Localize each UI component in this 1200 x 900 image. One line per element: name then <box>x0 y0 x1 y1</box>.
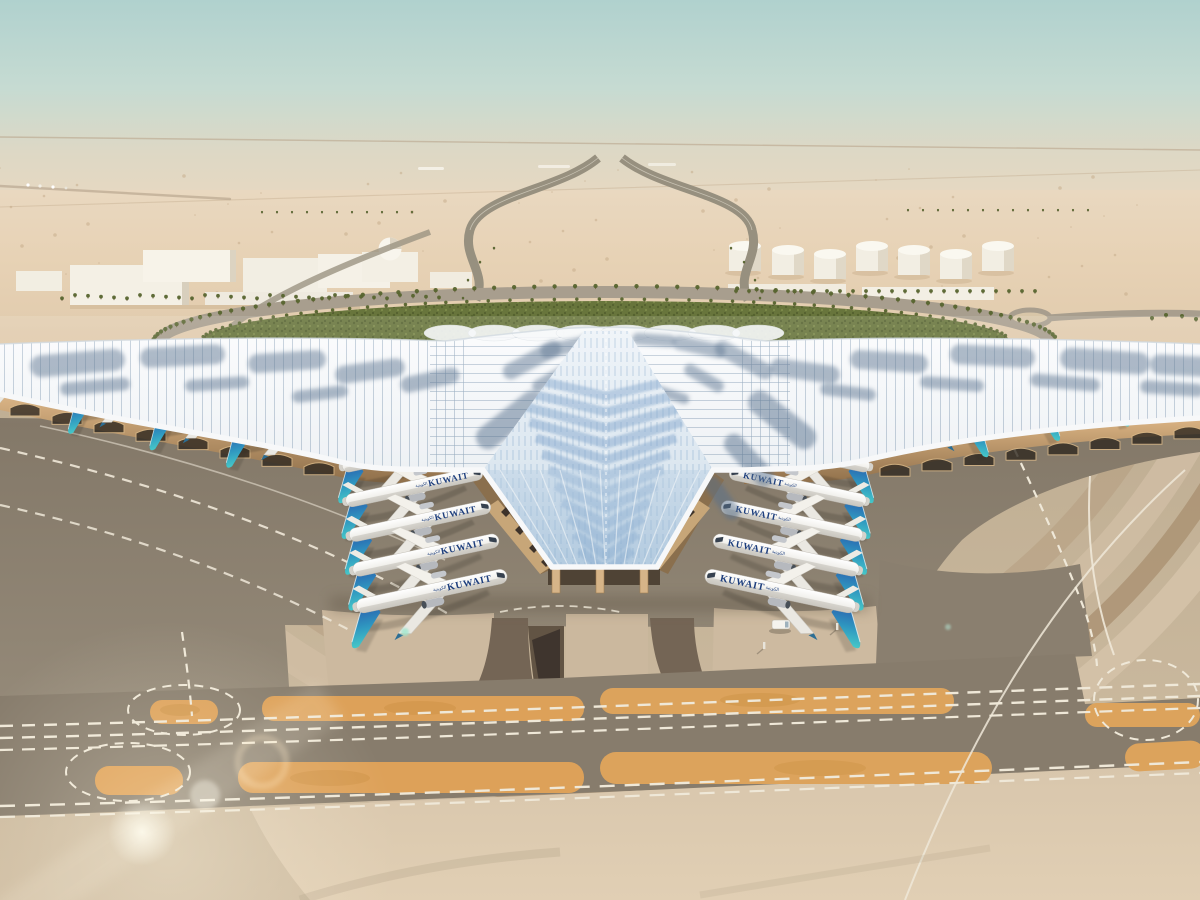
palm-crown <box>306 211 308 213</box>
palm-crown <box>967 209 969 211</box>
palm-crown <box>903 289 907 293</box>
sky <box>0 0 1200 210</box>
tank-top <box>856 241 888 251</box>
palm-crown <box>675 285 679 289</box>
scrub <box>443 199 447 203</box>
palm-crown <box>813 303 817 307</box>
palm-crown <box>321 211 323 213</box>
shoulder-mottle <box>774 760 866 776</box>
palm-crown <box>444 301 448 305</box>
scrub <box>344 232 348 236</box>
palm-crown <box>294 295 298 299</box>
tank-top <box>940 249 972 259</box>
palm-crown <box>890 289 894 293</box>
taxiway-lobe-right <box>876 560 1092 664</box>
palm-crown <box>812 289 816 293</box>
palm-crown <box>877 289 881 293</box>
palm-crown <box>276 211 278 213</box>
palm-crown <box>242 296 246 300</box>
palm-crown <box>486 299 490 303</box>
palm-crown <box>793 302 797 306</box>
scrub <box>691 171 694 174</box>
scrub <box>76 184 79 187</box>
palm-crown <box>754 279 757 282</box>
palm-crown <box>299 312 303 316</box>
palm-crown <box>346 294 350 298</box>
palm-crown <box>915 312 919 316</box>
palm-crown <box>900 311 904 315</box>
palm-crown <box>333 293 337 297</box>
scrub <box>518 202 520 204</box>
palm-crown <box>424 295 428 299</box>
scrub <box>746 238 748 240</box>
palm-crown <box>351 211 353 213</box>
palm-crown <box>331 308 335 312</box>
small-building <box>16 271 62 291</box>
palm-crown <box>190 296 194 300</box>
tank-top <box>982 241 1014 251</box>
palm-crown <box>695 285 699 289</box>
scrub <box>10 206 13 209</box>
scrub <box>572 268 576 272</box>
palm-crown <box>241 306 245 310</box>
palm-crown <box>687 298 691 302</box>
palm-crown <box>907 209 909 211</box>
gate-arch <box>1132 432 1162 444</box>
palm-crown <box>1042 209 1044 211</box>
gate-arch <box>880 464 910 476</box>
palm-crown <box>378 291 382 295</box>
scrub <box>529 241 532 244</box>
palm-crown <box>267 302 271 306</box>
scrub <box>1091 175 1095 179</box>
palm-crown <box>424 302 428 306</box>
palm-crown <box>472 286 476 290</box>
scrub <box>584 180 586 182</box>
small-building <box>430 272 472 288</box>
storage-tank <box>936 249 972 284</box>
palm-crown <box>553 298 557 302</box>
palm-crown <box>281 301 285 305</box>
scrub <box>86 222 90 226</box>
palm-crown <box>437 296 441 300</box>
palm-crown <box>398 293 402 297</box>
tank-top <box>772 245 804 255</box>
palm-crown <box>493 247 496 250</box>
palm-crown <box>982 209 984 211</box>
scrub <box>1103 215 1105 217</box>
palm-crown <box>937 209 939 211</box>
tank-top <box>814 249 846 259</box>
palm-crown <box>922 209 924 211</box>
gate-arch <box>1174 427 1200 439</box>
palm-crown <box>255 296 259 300</box>
palm-crown <box>384 304 388 308</box>
warehouse <box>243 258 327 292</box>
scrub <box>43 195 46 198</box>
palm-crown <box>492 286 496 290</box>
scrub <box>1048 276 1051 279</box>
palm-crown <box>86 294 90 298</box>
palm-crown <box>966 306 970 310</box>
palm-crown <box>665 298 669 302</box>
palm-crown <box>348 307 352 311</box>
palm-crown <box>829 291 833 295</box>
palm-crown <box>366 211 368 213</box>
palm-crown <box>731 299 735 303</box>
palm-crown <box>655 284 659 288</box>
scrub <box>98 262 100 264</box>
palm-crown <box>989 311 993 315</box>
scrub <box>875 179 877 181</box>
scrub <box>908 168 910 170</box>
scrub <box>962 234 966 238</box>
scrub <box>400 172 403 175</box>
scrub <box>562 230 565 233</box>
scrub <box>65 273 67 275</box>
palm-crown <box>709 299 713 303</box>
distant-car <box>26 183 29 186</box>
palm-crown <box>254 304 258 308</box>
palm-crown <box>940 303 944 307</box>
palm-crown <box>884 309 888 313</box>
scrub <box>194 214 196 216</box>
palm-crown <box>532 285 536 289</box>
palm-crown <box>880 296 884 300</box>
palm-crown <box>994 289 998 293</box>
palm-crown <box>60 296 64 300</box>
palm-crown <box>1033 289 1037 293</box>
palm-crown <box>643 297 647 301</box>
facade-column <box>552 569 560 593</box>
palm-crown <box>955 289 959 293</box>
gate-arch <box>1006 448 1036 460</box>
scrub <box>53 233 57 237</box>
gate-arch <box>1048 443 1078 455</box>
bollard <box>763 642 765 649</box>
palm-crown <box>593 284 597 288</box>
palm-crown <box>981 289 985 293</box>
storage-tank <box>978 241 1014 276</box>
palm-crown <box>911 299 915 303</box>
palm-crown <box>953 304 957 308</box>
palm-crown <box>634 284 638 288</box>
palm-crown <box>307 296 311 300</box>
warehouse-shade <box>230 250 236 282</box>
scrub <box>1124 292 1128 296</box>
scrub <box>941 285 943 287</box>
facade-column <box>640 569 648 593</box>
bollard <box>836 623 838 630</box>
palm-crown <box>759 297 762 300</box>
palm-crown <box>138 293 142 297</box>
palm-crown <box>315 310 319 314</box>
palm-crown <box>952 209 954 211</box>
palm-crown <box>730 247 733 250</box>
palm-crown <box>112 296 116 300</box>
van-windshield <box>785 622 789 628</box>
gate-arch <box>1090 438 1120 450</box>
palm-crown <box>747 289 751 293</box>
palm-crown <box>552 284 556 288</box>
scrub <box>701 209 705 213</box>
palm-crown <box>177 296 181 300</box>
palm-crown <box>864 289 868 293</box>
palm-crown <box>268 293 272 297</box>
scrub <box>1081 265 1084 268</box>
scrub <box>182 174 186 178</box>
scrub <box>779 227 781 229</box>
palm-crown <box>1072 209 1074 211</box>
palm-crown <box>715 286 719 290</box>
palm-crown <box>229 308 233 312</box>
distant-car <box>38 184 41 187</box>
scrub <box>952 196 955 199</box>
shoulder-strip <box>1124 740 1200 772</box>
palm-crown <box>752 300 756 304</box>
palm-crown <box>1012 209 1014 211</box>
palm-crown <box>896 297 900 301</box>
palm-crown <box>320 296 324 300</box>
palm-crown <box>462 297 465 300</box>
palm-crown <box>229 295 233 299</box>
storage-tank <box>810 249 846 284</box>
scrub <box>1058 186 1062 190</box>
palm-crown <box>467 279 470 282</box>
scrub <box>551 191 553 193</box>
shoulder-strip <box>1085 703 1200 727</box>
palm-crown <box>1020 289 1024 293</box>
distant-aircraft <box>648 163 676 166</box>
scrub <box>919 207 922 210</box>
palm-crown <box>942 289 946 293</box>
palm-crown <box>203 293 207 297</box>
palm-crown <box>1007 289 1011 293</box>
scrub <box>1037 237 1039 239</box>
palm-crown <box>396 211 398 213</box>
aerial-rendering-kuwait-terminal: الكويتية KUWAIT KUWAIT الكويتية <box>0 0 1200 900</box>
scrub <box>767 187 771 191</box>
palm-crown <box>792 289 796 293</box>
palm-crown <box>573 284 577 288</box>
palm-crown <box>575 297 579 301</box>
scrub <box>367 183 370 186</box>
storage-tank <box>894 245 930 280</box>
palm-crown <box>978 309 982 313</box>
scrub <box>757 277 760 280</box>
palm-crown <box>968 289 972 293</box>
palm-crown <box>151 294 155 298</box>
palm-crown <box>760 289 764 293</box>
gate-arch <box>922 459 952 471</box>
palm-crown <box>799 289 803 293</box>
rendering-canvas: الكويتية KUWAIT KUWAIT الكويتية <box>0 0 1200 900</box>
gate-arch <box>178 438 208 450</box>
palm-crown <box>598 297 602 301</box>
palm-crown <box>831 305 835 309</box>
palm-crown <box>385 296 389 300</box>
scrub <box>1114 254 1117 257</box>
scrub <box>929 245 933 249</box>
palm-crown <box>359 295 363 299</box>
palm-crown <box>125 296 129 300</box>
palm-crown <box>773 289 777 293</box>
palm-crown <box>825 289 829 293</box>
palm-crown <box>327 296 331 300</box>
gate-arch <box>304 463 334 475</box>
flare-dot-green <box>945 624 951 630</box>
scrub <box>713 249 715 251</box>
palm-crown <box>164 295 168 299</box>
palm-crown <box>863 294 867 298</box>
palm-crown <box>73 293 77 297</box>
palm-crown <box>512 285 516 289</box>
storage-tank <box>768 245 804 280</box>
distant-aircraft <box>538 165 570 168</box>
palm-crown <box>372 296 376 300</box>
flare-dot-green <box>401 628 409 636</box>
scrub <box>595 219 598 222</box>
scrub <box>377 221 381 225</box>
scrub <box>260 192 262 194</box>
palm-crown <box>218 311 222 315</box>
palm-crown <box>838 289 842 293</box>
scrub <box>617 169 619 171</box>
palm-crown <box>1057 209 1059 211</box>
palm-crown <box>311 297 315 301</box>
palm-crown <box>404 303 408 307</box>
palm-crown <box>1087 209 1089 211</box>
distance-haze <box>0 316 1200 426</box>
palm-crown <box>415 289 419 293</box>
palm-crown <box>620 297 624 301</box>
palm-crown <box>530 298 534 302</box>
palm-crown <box>291 211 293 213</box>
palm-crown <box>453 287 457 291</box>
palm-crown <box>465 300 469 304</box>
palm-crown <box>926 301 930 305</box>
scrub <box>227 203 229 205</box>
palm-crown <box>997 209 999 211</box>
palm-crown <box>336 211 338 213</box>
scrub <box>1136 204 1138 206</box>
palm-crown <box>508 298 512 302</box>
facade-column <box>596 569 604 593</box>
scrub <box>422 250 424 252</box>
scrub <box>20 244 24 248</box>
palm-crown <box>296 299 300 303</box>
scrub <box>271 231 274 234</box>
distant-aircraft <box>418 167 444 170</box>
scrub <box>539 279 543 283</box>
palm-crown <box>929 289 933 293</box>
palm-crown <box>851 289 855 293</box>
palm-crown <box>850 306 854 310</box>
scrub <box>1070 226 1072 228</box>
palm-crown <box>216 294 220 298</box>
palm-crown <box>734 289 738 293</box>
palm-crown <box>411 294 415 298</box>
palm-crown <box>786 289 790 293</box>
tank-top <box>898 245 930 255</box>
palm-crown <box>381 211 383 213</box>
distant-car <box>51 185 54 188</box>
palm-crown <box>366 305 370 309</box>
palm-crown <box>411 211 413 213</box>
palm-crown <box>1027 209 1029 211</box>
scrub <box>734 198 738 202</box>
palm-crown <box>434 288 438 292</box>
palm-crown <box>99 295 103 299</box>
storage-tank <box>852 241 888 276</box>
scrub <box>238 242 241 245</box>
palm-crown <box>743 261 746 264</box>
palm-crown <box>846 293 850 297</box>
palm-crown <box>773 301 777 305</box>
warehouse <box>143 250 235 282</box>
palm-crown <box>916 289 920 293</box>
distant-car <box>65 187 68 190</box>
palm-crown <box>479 261 482 264</box>
palm-crown <box>754 287 758 291</box>
palm-crown <box>261 211 263 213</box>
palm-crown <box>867 307 871 311</box>
palm-crown <box>614 284 618 288</box>
scrub <box>886 218 889 221</box>
scrub <box>605 257 609 261</box>
palm-crown <box>281 294 285 298</box>
